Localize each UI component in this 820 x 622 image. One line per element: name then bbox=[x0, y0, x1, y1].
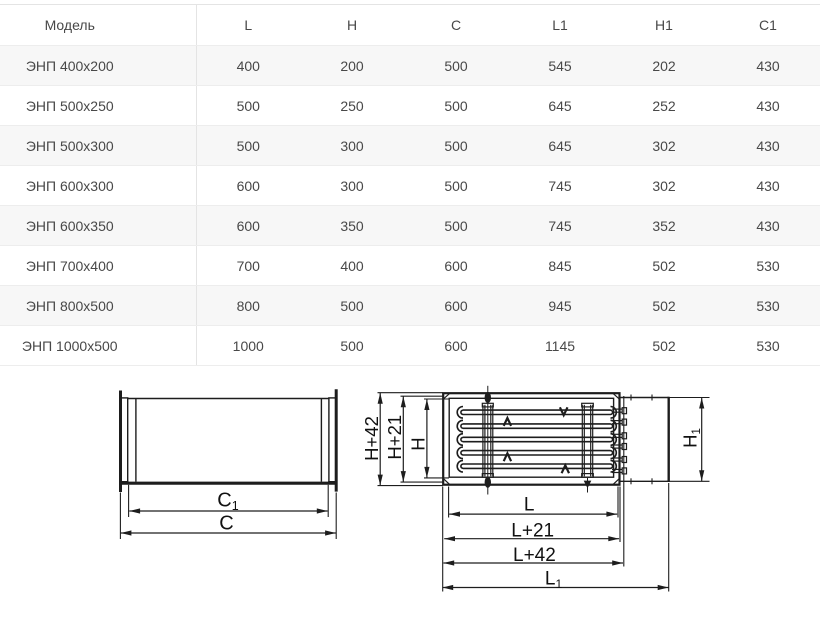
svg-text:L: L bbox=[524, 495, 535, 516]
svg-text:H: H bbox=[408, 437, 429, 450]
svg-text:H1: H1 bbox=[680, 428, 704, 448]
svg-text:C1: C1 bbox=[217, 490, 238, 514]
svg-text:H+21: H+21 bbox=[384, 415, 405, 460]
svg-text:L+42: L+42 bbox=[513, 545, 556, 566]
svg-text:H+42: H+42 bbox=[361, 416, 382, 461]
svg-text:L+21: L+21 bbox=[511, 520, 554, 541]
svg-text:L1: L1 bbox=[545, 569, 563, 592]
svg-text:C: C bbox=[219, 513, 233, 535]
